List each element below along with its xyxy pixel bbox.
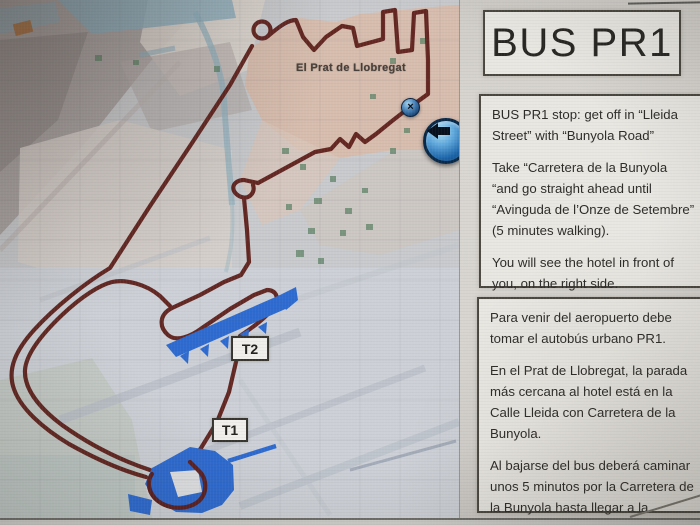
terminal-1-text: T1 [222,422,238,438]
english-paragraph-3: You will see the hotel in front of you, … [492,253,697,294]
x-marker-glyph: × [407,102,413,113]
spanish-instructions-box: Para venir del aeropuerto debe tomar el … [477,297,700,513]
spanish-paragraph-3: Al bajarse del bus deberá caminar unos 5… [490,456,698,525]
terminal-2-label: T2 [231,336,269,361]
page-title: BUS PR1 [491,21,673,66]
page-bottom-edge [0,518,700,525]
spanish-paragraph-2: En el Prat de Llobregat, la parada más c… [490,361,698,444]
english-instructions-box: BUS PR1 stop: get off in “Lleida Street”… [479,94,700,288]
terminal-1-label: T1 [212,418,248,442]
town-label: El Prat de Llobregat [296,62,446,74]
x-marker-icon: × [401,98,420,117]
english-paragraph-1: BUS PR1 stop: get off in “Lleida Street”… [492,105,697,146]
english-paragraph-2: Take “Carretera de la Bunyola “and go st… [492,158,697,241]
spanish-paragraph-1: Para venir del aeropuerto debe tomar el … [490,308,698,349]
terminal-2-text: T2 [242,341,258,357]
route-map: El Prat de Llobregat T2 T1 × [0,0,459,518]
instructions-panel: BUS PR1 BUS PR1 stop: get off in “Lleida… [459,0,700,525]
title-box: BUS PR1 [483,10,681,76]
back-arrow-icon [426,121,452,141]
photographed-page: El Prat de Llobregat T2 T1 × BUS PR1 BUS… [0,0,700,525]
